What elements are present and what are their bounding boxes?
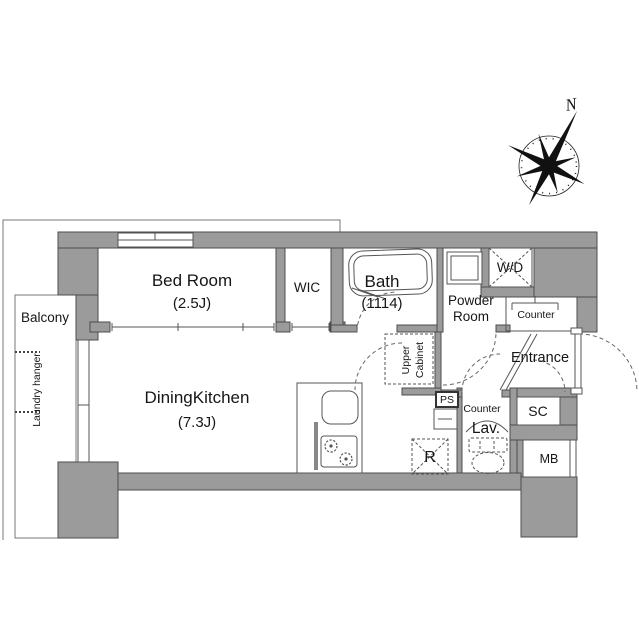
north-label: N [563, 94, 580, 115]
powder-door-arc [443, 332, 496, 385]
entrance-door [571, 328, 582, 394]
front-door-arc [579, 334, 637, 392]
bedroom-size-label: (2.5J) [173, 295, 211, 312]
floor-plan-page: Bed Room (2.5J) WIC Bath (1114) Powder R… [0, 0, 639, 640]
bath-label: Bath [365, 272, 400, 291]
lav-door-arc [462, 354, 500, 392]
burner-icon [344, 457, 347, 460]
powder-sink [447, 252, 482, 284]
balcony-window [78, 340, 89, 462]
upper-cabinet-label-2: Cabinet [414, 342, 426, 378]
bedroom-sliding-door [112, 323, 274, 331]
laundry-hanger-label: Laundry hanger [31, 353, 43, 427]
ps-label: PS [440, 394, 454, 406]
floor-plan: Bed Room (2.5J) WIC Bath (1114) Powder R… [0, 0, 639, 640]
powder-room-label-1: Powder [448, 293, 494, 308]
powder-room-label-2: Room [453, 309, 489, 324]
kitchen-counter [297, 383, 362, 473]
wd-label: W/D [497, 260, 523, 275]
upper-cabinet-label-1: Upper [400, 345, 412, 374]
wic-label: WIC [294, 280, 320, 295]
wic-door [292, 323, 329, 331]
bedroom-label: Bed Room [152, 271, 232, 290]
counter-bracket [512, 296, 558, 310]
burner-icon [329, 444, 332, 447]
lav-label: Lav. [472, 420, 500, 437]
lav-counter-label: Counter [463, 403, 501, 415]
small-basin [434, 409, 457, 429]
sc-label: SC [528, 403, 547, 419]
dining-kitchen-size-label: (7.3J) [178, 414, 216, 431]
counter-label: Counter [517, 309, 555, 321]
dining-kitchen-label: DiningKitchen [145, 388, 250, 407]
mb-label: MB [540, 452, 559, 466]
entrance-label: Entrance [511, 350, 569, 366]
compass-rose: N [506, 94, 587, 207]
bedroom-window [118, 233, 193, 247]
refrigerator-label: R [424, 449, 436, 466]
building-boundary-line [3, 220, 340, 540]
balcony-label: Balcony [21, 310, 69, 325]
kitchen-partition [314, 422, 318, 470]
bath-size-label: (1114) [361, 295, 402, 312]
